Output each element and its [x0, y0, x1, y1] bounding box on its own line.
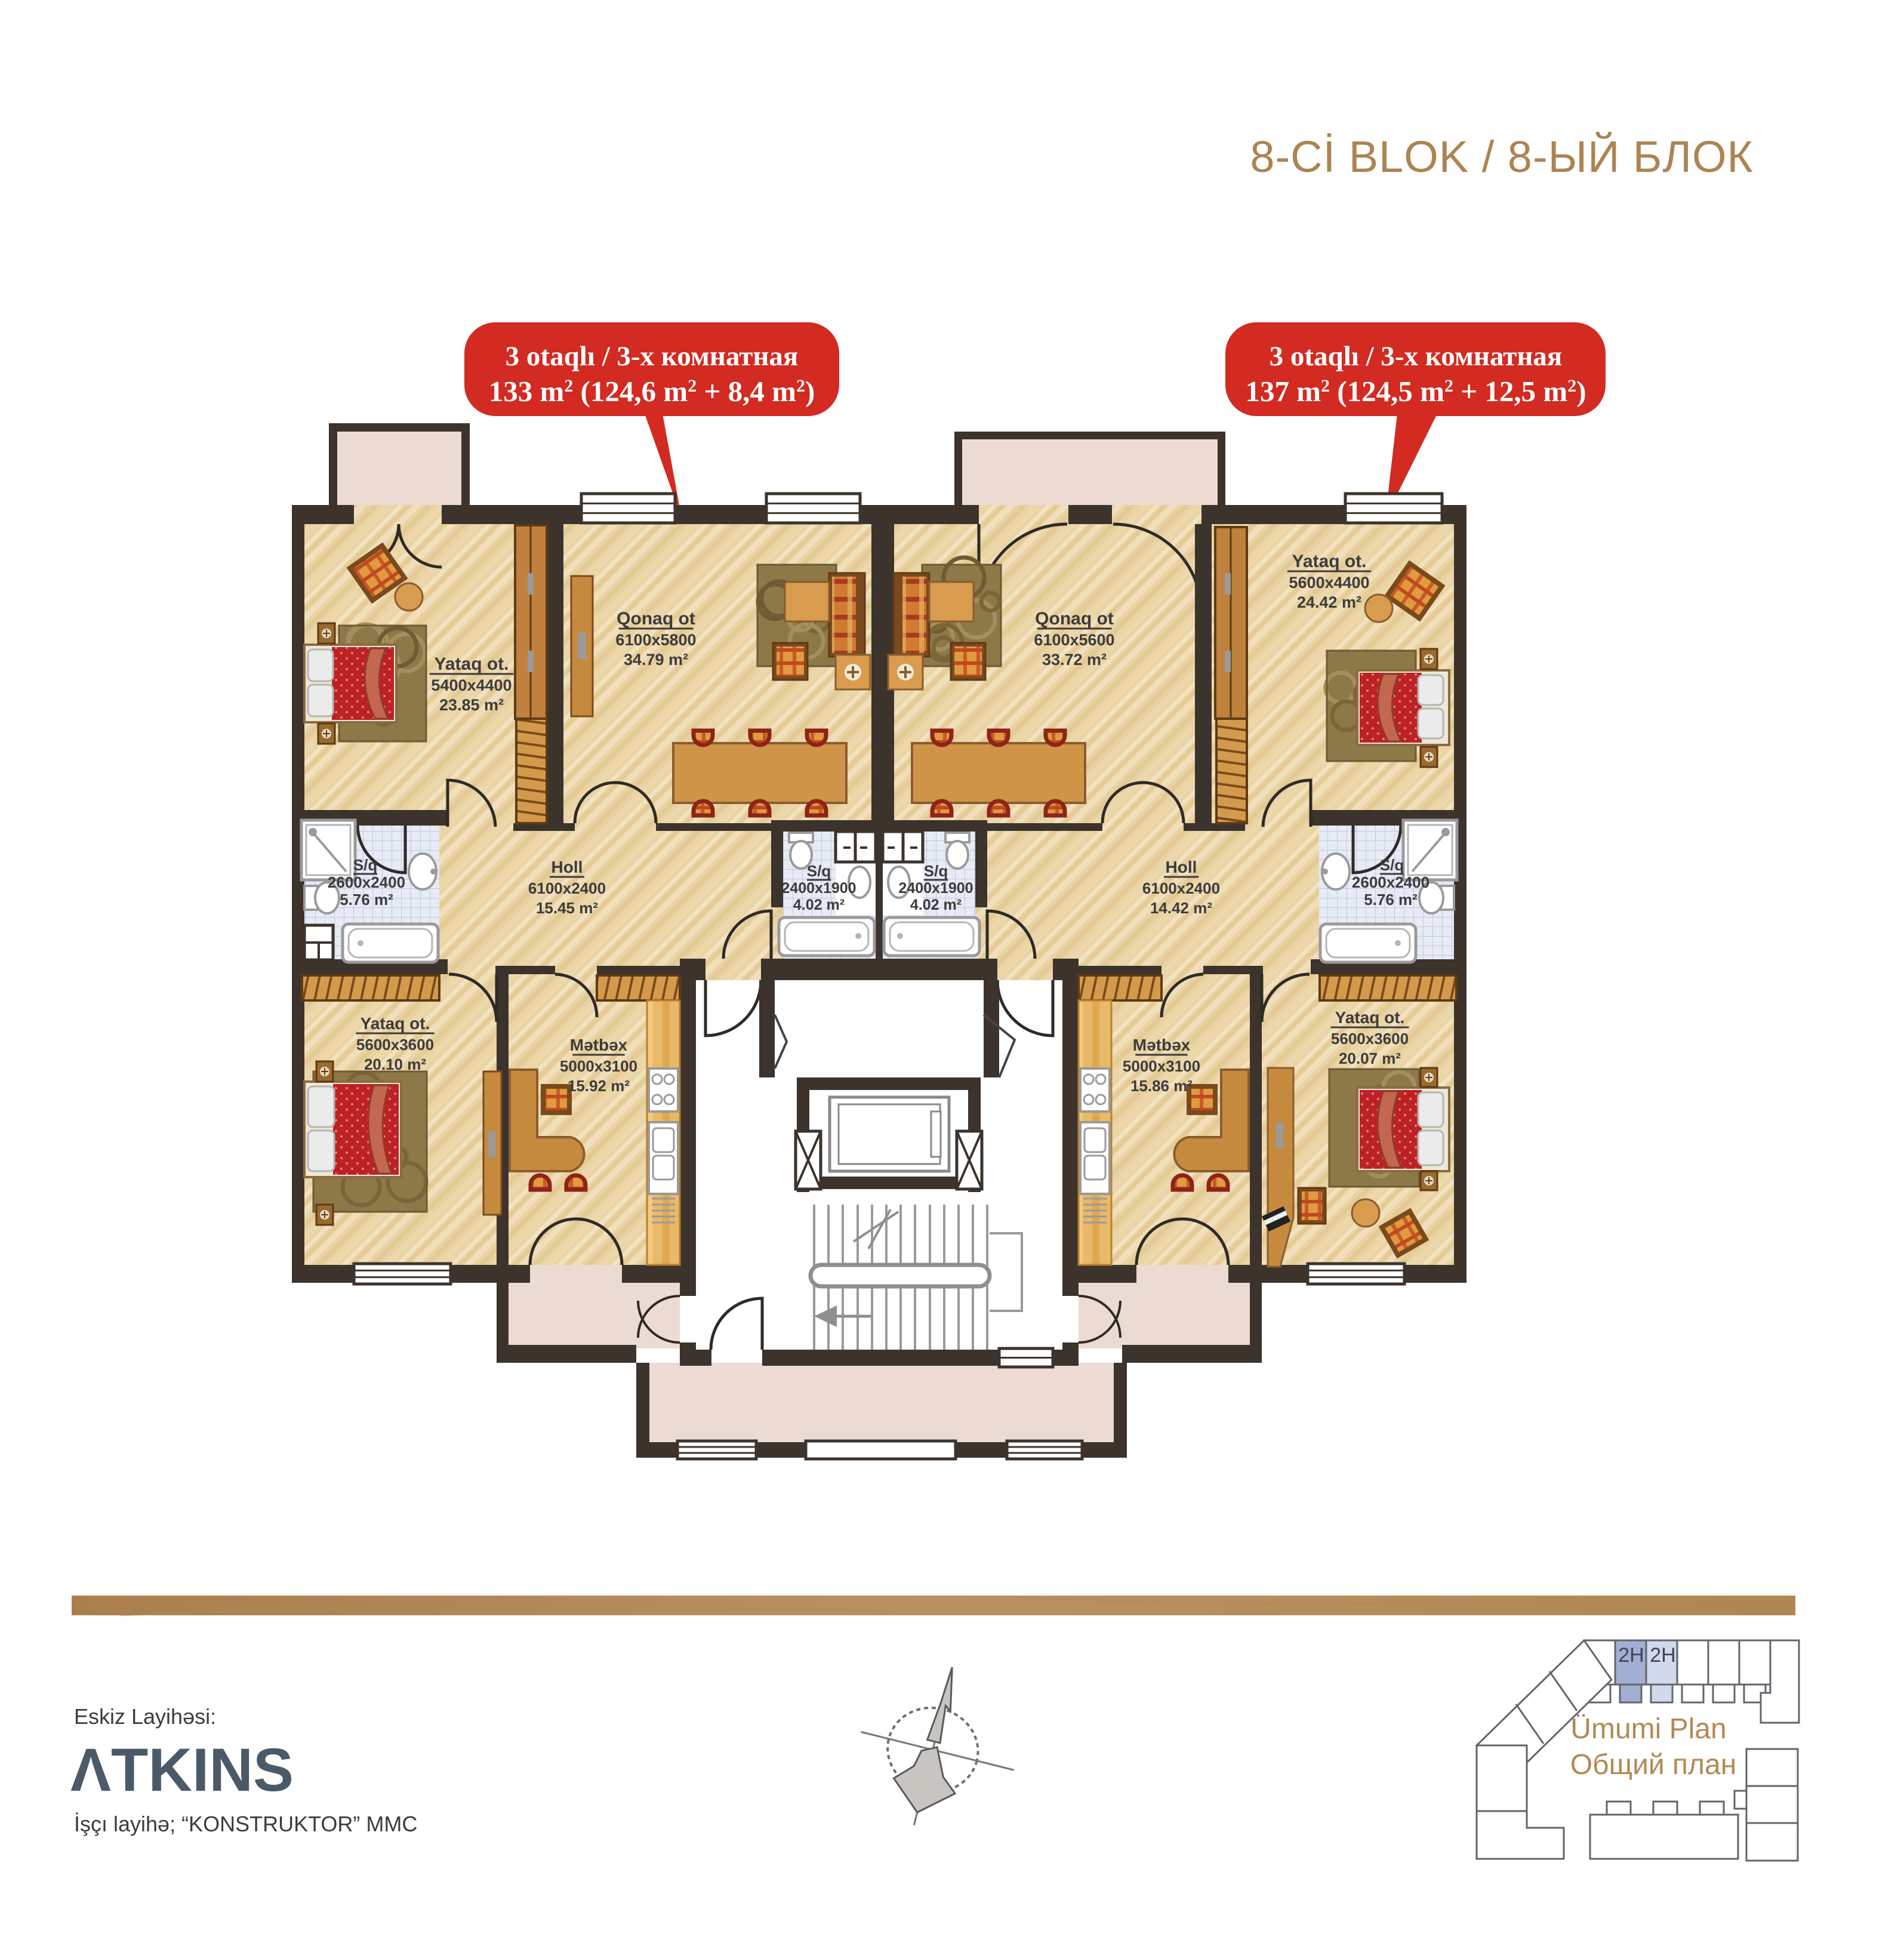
svg-text:6100x5600: 6100x5600: [1034, 631, 1114, 649]
svg-text:4.02 m²: 4.02 m²: [793, 897, 845, 913]
svg-text:Ümumi Plan: Ümumi Plan: [1570, 1713, 1726, 1745]
svg-text:ΛTKINS: ΛTKINS: [70, 1736, 294, 1804]
svg-text:5600x4400: 5600x4400: [1289, 574, 1369, 592]
svg-text:5600x3600: 5600x3600: [1331, 1030, 1409, 1048]
svg-text:Eskiz Layihəsi:: Eskiz Layihəsi:: [74, 1704, 216, 1729]
svg-text:2600x2400: 2600x2400: [1352, 873, 1429, 891]
svg-text:5000x3100: 5000x3100: [560, 1057, 637, 1075]
svg-text:15.92 m²: 15.92 m²: [568, 1077, 630, 1095]
svg-text:Mətbəx: Mətbəx: [1133, 1036, 1191, 1054]
svg-text:Qonaq ot: Qonaq ot: [617, 609, 695, 629]
svg-text:6100x2400: 6100x2400: [528, 879, 606, 897]
svg-text:5000x3100: 5000x3100: [1123, 1057, 1200, 1075]
svg-text:15.86 m²: 15.86 m²: [1130, 1077, 1193, 1095]
svg-text:5400x4400: 5400x4400: [431, 676, 512, 694]
svg-text:5.76 m²: 5.76 m²: [1364, 891, 1418, 909]
svg-text:İşçı layihə; “KONSTRUKTOR” MMC: İşçı layihə; “KONSTRUKTOR” MMC: [74, 1812, 417, 1836]
svg-text:34.79 m²: 34.79 m²: [624, 651, 688, 669]
svg-text:2600x2400: 2600x2400: [328, 873, 405, 891]
svg-text:S/q: S/q: [807, 862, 831, 880]
svg-text:8-Cİ BLOK / 8-ЫЙ БЛОК: 8-Cİ BLOK / 8-ЫЙ БЛОК: [1250, 132, 1753, 181]
svg-text:24.42 m²: 24.42 m²: [1297, 593, 1361, 611]
svg-text:Mətbəx: Mətbəx: [570, 1036, 628, 1054]
svg-text:33.72 m²: 33.72 m²: [1042, 651, 1107, 669]
svg-text:2400x1900: 2400x1900: [781, 880, 856, 897]
svg-text:S/q: S/q: [1380, 856, 1404, 874]
svg-text:6100x5800: 6100x5800: [615, 631, 696, 649]
svg-text:14.42 m²: 14.42 m²: [1150, 899, 1212, 917]
svg-text:2H: 2H: [1618, 1644, 1644, 1667]
svg-text:5600x3600: 5600x3600: [356, 1036, 434, 1054]
svg-text:Общий план: Общий план: [1570, 1749, 1736, 1781]
svg-text:2400x1900: 2400x1900: [898, 880, 973, 897]
svg-text:3 otaqlı / 3-х комнатная: 3 otaqlı / 3-х комнатная: [506, 341, 799, 372]
svg-text:137 m2 (124,5 m2 + 12,5 m2): 137 m2 (124,5 m2 + 12,5 m2): [1245, 375, 1586, 408]
svg-text:Qonaq ot: Qonaq ot: [1035, 609, 1114, 629]
svg-text:Holl: Holl: [552, 858, 583, 876]
svg-text:Yataq ot.: Yataq ot.: [1335, 1008, 1405, 1027]
svg-text:5.76 m²: 5.76 m²: [340, 891, 393, 909]
svg-text:2H: 2H: [1650, 1644, 1675, 1667]
svg-text:Yataq ot.: Yataq ot.: [434, 654, 509, 674]
svg-text:Holl: Holl: [1166, 858, 1197, 876]
svg-text:133 m2 (124,6 m2 + 8,4 m2): 133 m2 (124,6 m2 + 8,4 m2): [489, 375, 815, 408]
svg-text:3 otaqlı / 3-х комнатная: 3 otaqlı / 3-х комнатная: [1270, 341, 1563, 372]
svg-text:Yataq ot.: Yataq ot.: [361, 1014, 430, 1033]
svg-text:15.45 m²: 15.45 m²: [536, 899, 598, 917]
svg-text:23.85 m²: 23.85 m²: [439, 696, 504, 714]
svg-text:6100x2400: 6100x2400: [1142, 879, 1220, 897]
svg-text:20.10 m²: 20.10 m²: [364, 1055, 426, 1073]
svg-text:S/q: S/q: [924, 862, 948, 880]
svg-text:20.07 m²: 20.07 m²: [1339, 1049, 1401, 1067]
svg-text:S/q: S/q: [353, 856, 377, 874]
svg-text:4.02 m²: 4.02 m²: [910, 897, 962, 913]
svg-text:Yataq ot.: Yataq ot.: [1292, 552, 1366, 571]
